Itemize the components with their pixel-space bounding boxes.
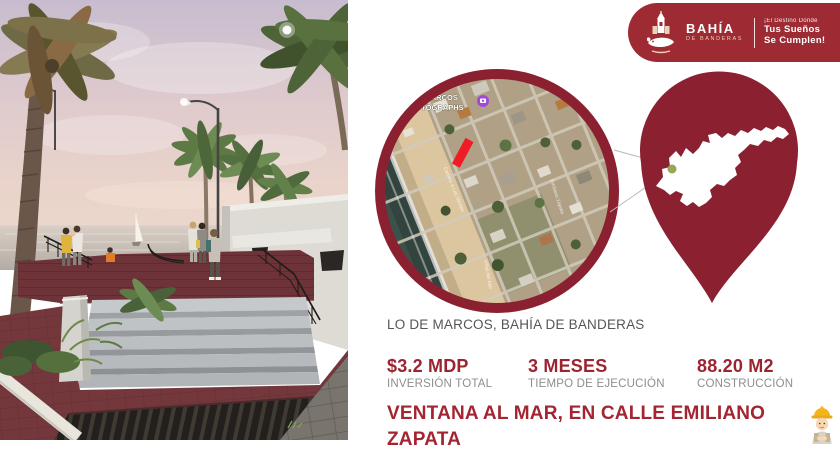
project-render-image xyxy=(0,0,348,440)
brand-subname: DE BANDERAS xyxy=(686,37,743,43)
location-pin-overlay xyxy=(595,55,840,315)
stat-investment: $3.2 MDP INVERSIÓN TOTAL xyxy=(387,357,492,391)
brand-name: BAHÍA xyxy=(686,22,743,35)
project-title: VENTANA AL MAR, EN CALLE EMILIANO ZAPATA xyxy=(387,401,787,453)
construction-worker-icon xyxy=(806,404,838,444)
brand-badge: BAHÍA DE BANDERAS ¡El Destino Donde Tus … xyxy=(628,3,840,62)
stat-duration-label: TIEMPO DE EJECUCIÓN xyxy=(528,379,665,391)
badge-divider xyxy=(754,18,755,48)
stat-construction-value: 88.20 M2 xyxy=(697,357,793,375)
bahia-de-banderas-logo-icon xyxy=(644,11,678,55)
stat-duration-value: 3 MESES xyxy=(528,357,665,375)
brand-tagline-line2: Se Cumplen! xyxy=(764,36,825,47)
stat-construction: 88.20 M2 CONSTRUCCIÓN xyxy=(697,357,793,391)
location-dot xyxy=(668,165,677,174)
stat-investment-label: INVERSIÓN TOTAL xyxy=(387,379,492,391)
satellite-map-circle: Camino a Las Minitas Villas del Mar Emil… xyxy=(372,60,628,316)
stat-duration: 3 MESES TIEMPO DE EJECUCIÓN xyxy=(528,357,665,391)
stat-investment-value: $3.2 MDP xyxy=(387,357,492,375)
brand-tagline-small: ¡El Destino Donde xyxy=(764,18,825,25)
stat-construction-label: CONSTRUCCIÓN xyxy=(697,379,793,391)
location-caption: LO DE MARCOS, BAHÍA DE BANDERAS xyxy=(387,317,645,332)
